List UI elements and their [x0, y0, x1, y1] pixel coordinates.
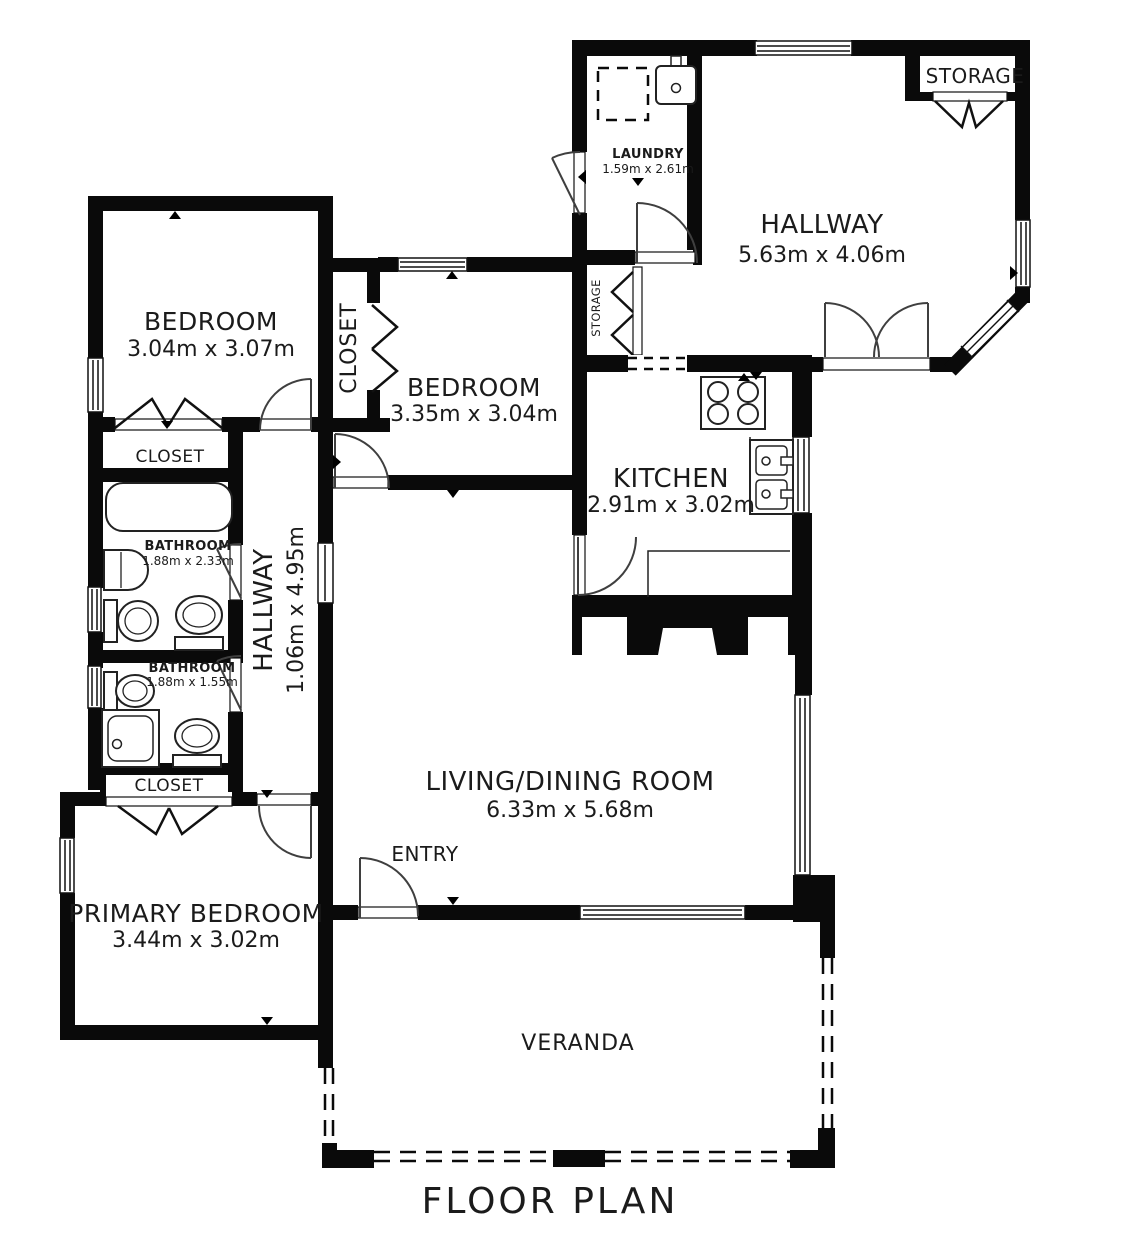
bifold-storage-small	[612, 272, 633, 355]
kitchen-dims: 2.91m x 3.02m	[587, 493, 755, 518]
washer-outline	[598, 68, 648, 120]
stove	[701, 377, 765, 429]
hallway-bedrooms-dims: 1.06m x 4.95m	[284, 526, 309, 694]
primary-bedroom-name: PRIMARY BEDROOM	[68, 899, 323, 928]
hallway-bedrooms-name: HALLWAY	[249, 548, 279, 671]
toilet-bathroom1-bottom	[175, 596, 223, 650]
kitchen-name: KITCHEN	[613, 464, 729, 494]
window-primary-left	[60, 838, 74, 893]
laundry-name: LAUNDRY	[612, 147, 684, 162]
window-hallway-right	[1016, 220, 1030, 287]
hallway-main-name: HALLWAY	[760, 210, 883, 240]
laundry-dims: 1.59m x 2.61m	[602, 162, 694, 176]
veranda-dashed-walls	[325, 958, 832, 1161]
door-french-right	[874, 303, 928, 357]
bathroom1-name: BATHROOM	[145, 539, 232, 554]
bedroom1-dims: 3.04m x 3.07m	[127, 337, 295, 362]
window-living-right	[795, 695, 810, 875]
window-bathroom2-left	[88, 666, 101, 708]
entry-label: ENTRY	[391, 842, 458, 866]
storage-hallway-label: STORAGE	[926, 64, 1025, 88]
bedroom1-name: BEDROOM	[144, 307, 278, 336]
window-bay-angled	[961, 300, 1019, 358]
bifold-closet-bedroom2	[372, 305, 397, 392]
bifold-storage-hallway	[935, 101, 1003, 127]
living-dining-dims: 6.33m x 5.68m	[486, 798, 654, 823]
closet-bedroom2-label: CLOSET	[337, 302, 362, 393]
cased-opening-kitchen	[628, 355, 687, 372]
toilet-bathroom1-left	[104, 600, 158, 642]
hallway-main-dims: 5.63m x 4.06m	[738, 243, 906, 268]
storage-small-label: STORAGE	[589, 279, 603, 337]
kitchen-sink	[750, 440, 793, 514]
closet-bathroom-label: CLOSET	[135, 447, 204, 467]
veranda-label: VERANDA	[521, 1031, 634, 1056]
window-hallway-interior	[318, 543, 333, 603]
bedroom2-name: BEDROOM	[407, 373, 541, 402]
bathtub	[106, 483, 232, 531]
bathroom2-name: BATHROOM	[149, 661, 236, 676]
floor-plan-page: BEDROOM 3.04m x 3.07m CLOSET BEDROOM 3.3…	[0, 0, 1142, 1260]
primary-bedroom-dims: 3.44m x 3.02m	[112, 928, 280, 953]
floor-plan-drawing: BEDROOM 3.04m x 3.07m CLOSET BEDROOM 3.3…	[0, 0, 1142, 1260]
door-primary-bedroom	[259, 806, 311, 858]
living-dining-name: LIVING/DINING ROOM	[425, 767, 714, 797]
window-bedroom2-top	[398, 258, 467, 271]
shower	[102, 710, 159, 767]
window-bedroom1-left	[88, 358, 103, 412]
toilet-bathroom2-bottom	[173, 719, 221, 767]
window-kitchen-right	[793, 437, 809, 513]
bathroom1-dims: 1.88m x 2.33m	[142, 554, 234, 568]
window-living-bottom	[580, 906, 745, 919]
door-kitchen	[578, 537, 636, 595]
bathroom2-dims: 1.88m x 1.55m	[146, 675, 238, 689]
closet-primary-label: CLOSET	[134, 776, 203, 796]
door-french-left	[825, 303, 879, 357]
window-hallway-top	[755, 41, 852, 55]
bifold-closet-primary	[118, 806, 218, 834]
window-bathroom1-left	[88, 587, 101, 632]
bedroom2-dims: 3.35m x 3.04m	[390, 402, 558, 427]
plan-title: FLOOR PLAN	[422, 1181, 679, 1222]
